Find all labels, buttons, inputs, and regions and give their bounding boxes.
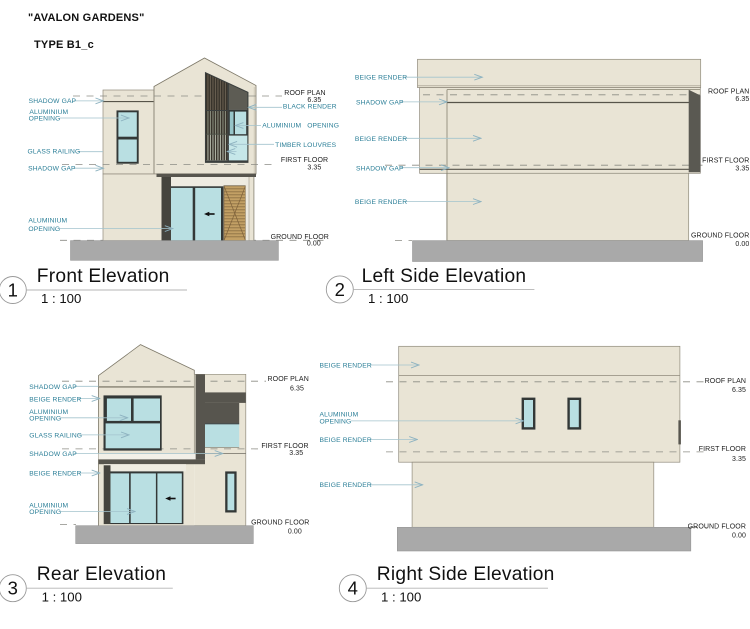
svg-text:ALUMINIUM: ALUMINIUM bbox=[320, 411, 359, 418]
svg-text:6.35: 6.35 bbox=[307, 97, 321, 104]
svg-text:BEIGE RENDER: BEIGE RENDER bbox=[355, 199, 407, 206]
svg-text:1: 1 bbox=[8, 280, 18, 301]
svg-text:BEIGE RENDER: BEIGE RENDER bbox=[355, 75, 407, 82]
svg-text:3.35: 3.35 bbox=[735, 166, 749, 173]
svg-text:BEIGE RENDER: BEIGE RENDER bbox=[29, 471, 81, 478]
svg-text:GLASS RAILING: GLASS RAILING bbox=[29, 432, 82, 439]
svg-text:OPENING: OPENING bbox=[320, 419, 352, 426]
svg-text:6.35: 6.35 bbox=[732, 387, 746, 394]
svg-text:Left Side Elevation: Left Side Elevation bbox=[362, 266, 527, 287]
svg-text:ROOF PLAN: ROOF PLAN bbox=[705, 378, 746, 385]
svg-text:OPENING: OPENING bbox=[28, 226, 60, 233]
svg-text:"AVALON GARDENS": "AVALON GARDENS" bbox=[28, 12, 145, 24]
svg-text:Front Elevation: Front Elevation bbox=[37, 266, 170, 287]
svg-text:SHADOW GAP: SHADOW GAP bbox=[356, 165, 404, 172]
svg-text:GROUND FLOOR: GROUND FLOOR bbox=[251, 519, 309, 526]
svg-text:BEIGE RENDER: BEIGE RENDER bbox=[320, 482, 372, 489]
svg-text:FIRST FLOOR: FIRST FLOOR bbox=[261, 443, 308, 450]
svg-text:SHADOW GAP: SHADOW GAP bbox=[28, 166, 76, 173]
svg-text:BEIGE RENDER: BEIGE RENDER bbox=[320, 437, 372, 444]
svg-text:1 : 100: 1 : 100 bbox=[368, 291, 408, 306]
svg-text:1 : 100: 1 : 100 bbox=[381, 590, 421, 605]
svg-text:OPENING: OPENING bbox=[29, 116, 61, 123]
svg-text:OPENING: OPENING bbox=[29, 509, 61, 516]
svg-text:TYPE B1_c: TYPE B1_c bbox=[34, 39, 94, 51]
svg-text:SHADOW GAP: SHADOW GAP bbox=[356, 100, 404, 107]
svg-text:Rear Elevation: Rear Elevation bbox=[37, 564, 166, 585]
svg-text:OPENING: OPENING bbox=[29, 415, 61, 422]
svg-text:SHADOW GAP: SHADOW GAP bbox=[29, 98, 77, 105]
svg-text:BEIGE RENDER: BEIGE RENDER bbox=[320, 362, 372, 369]
svg-text:FIRST FLOOR: FIRST FLOOR bbox=[702, 158, 749, 165]
svg-text:ROOF PLAN: ROOF PLAN bbox=[708, 88, 749, 95]
svg-text:BEIGE RENDER: BEIGE RENDER bbox=[355, 136, 407, 143]
svg-text:1 : 100: 1 : 100 bbox=[41, 291, 81, 306]
svg-text:BEIGE RENDER: BEIGE RENDER bbox=[29, 396, 81, 403]
svg-text:TIMBER LOUVRES: TIMBER LOUVRES bbox=[275, 142, 337, 149]
svg-text:GLASS RAILING: GLASS RAILING bbox=[28, 149, 81, 156]
svg-text:BLACK RENDER: BLACK RENDER bbox=[283, 104, 337, 111]
svg-text:6.35: 6.35 bbox=[290, 385, 304, 392]
svg-text:ALUMINIUM: ALUMINIUM bbox=[28, 218, 67, 225]
svg-text:SHADOW GAP: SHADOW GAP bbox=[29, 384, 77, 391]
svg-text:Right Side Elevation: Right Side Elevation bbox=[377, 564, 555, 585]
svg-text:GROUND FLOOR: GROUND FLOOR bbox=[691, 232, 749, 239]
svg-text:3.35: 3.35 bbox=[289, 450, 303, 457]
svg-text:0.00: 0.00 bbox=[732, 532, 746, 539]
svg-text:3: 3 bbox=[8, 578, 18, 599]
svg-text:0.00: 0.00 bbox=[735, 241, 749, 248]
svg-text:1 : 100: 1 : 100 bbox=[42, 590, 82, 605]
svg-text:0.00: 0.00 bbox=[307, 241, 321, 248]
svg-text:FIRST FLOOR: FIRST FLOOR bbox=[699, 446, 746, 453]
svg-text:ALUMINIUM OPENING: ALUMINIUM OPENING bbox=[262, 123, 339, 130]
svg-text:2: 2 bbox=[335, 279, 345, 300]
svg-text:6.35: 6.35 bbox=[735, 96, 749, 103]
svg-text:ROOF PLAN: ROOF PLAN bbox=[268, 376, 309, 383]
svg-text:GROUND FLOOR: GROUND FLOOR bbox=[688, 524, 746, 531]
svg-text:3.35: 3.35 bbox=[307, 164, 321, 171]
svg-text:3.35: 3.35 bbox=[732, 456, 746, 463]
svg-text:FIRST FLOOR: FIRST FLOOR bbox=[281, 157, 328, 164]
svg-text:4: 4 bbox=[348, 578, 358, 599]
svg-text:SHADOW GAP: SHADOW GAP bbox=[29, 451, 77, 458]
svg-text:0.00: 0.00 bbox=[288, 528, 302, 535]
